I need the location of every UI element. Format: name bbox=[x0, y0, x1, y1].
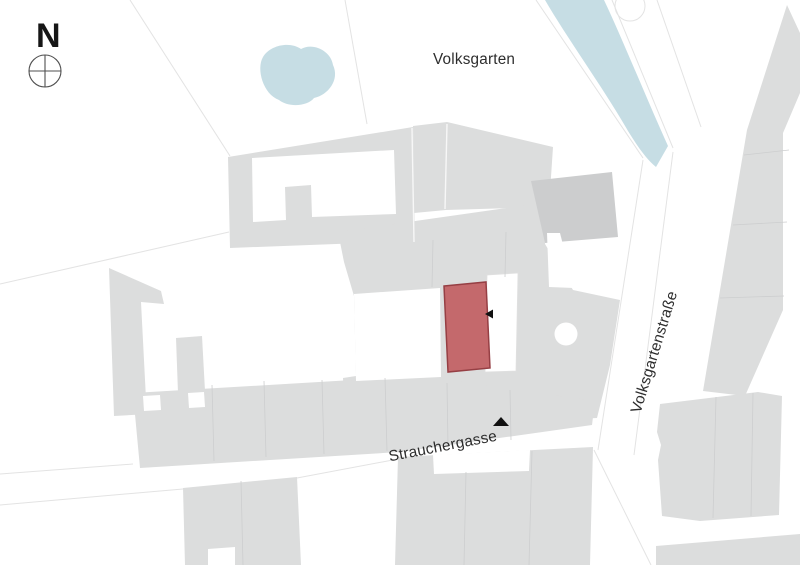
highlighted-site-building bbox=[444, 282, 490, 372]
street-edge-strauchergasse-north bbox=[0, 464, 133, 474]
river bbox=[545, 0, 668, 167]
building-band-bottom-right bbox=[656, 534, 800, 565]
gap-wedge-central bbox=[547, 233, 574, 288]
building-block-east-dark bbox=[531, 172, 618, 243]
building-block-southeast bbox=[657, 392, 782, 521]
park-label: Volksgarten bbox=[433, 51, 515, 68]
notch-street-north-1 bbox=[143, 395, 161, 411]
pond bbox=[260, 45, 335, 105]
courtyard-west-of-site bbox=[354, 288, 441, 381]
site-plan-map: N Volksgarten Strauchergasse Volksgarten… bbox=[0, 0, 800, 565]
parcel-line bbox=[130, 0, 230, 156]
courtyard-round-notch bbox=[555, 323, 578, 346]
north-compass: N bbox=[29, 17, 61, 87]
building-strip-west bbox=[176, 336, 205, 393]
street-edge-strauchergasse-south bbox=[297, 459, 398, 478]
street-edge-strauchergasse-south bbox=[0, 489, 183, 505]
park-path-line bbox=[657, 0, 701, 127]
notch-street-north-2 bbox=[188, 392, 205, 408]
building-strip-east-of-street bbox=[703, 5, 800, 396]
street-label-volksgartenstrasse: Volksgartenstraße bbox=[628, 289, 681, 415]
building-block-north-arm bbox=[413, 122, 553, 213]
parcel-line bbox=[345, 0, 367, 124]
notch-southwest-block bbox=[208, 547, 235, 565]
street-edge-volksgartenstrasse-south bbox=[594, 450, 651, 565]
compass-north-letter: N bbox=[36, 17, 61, 55]
